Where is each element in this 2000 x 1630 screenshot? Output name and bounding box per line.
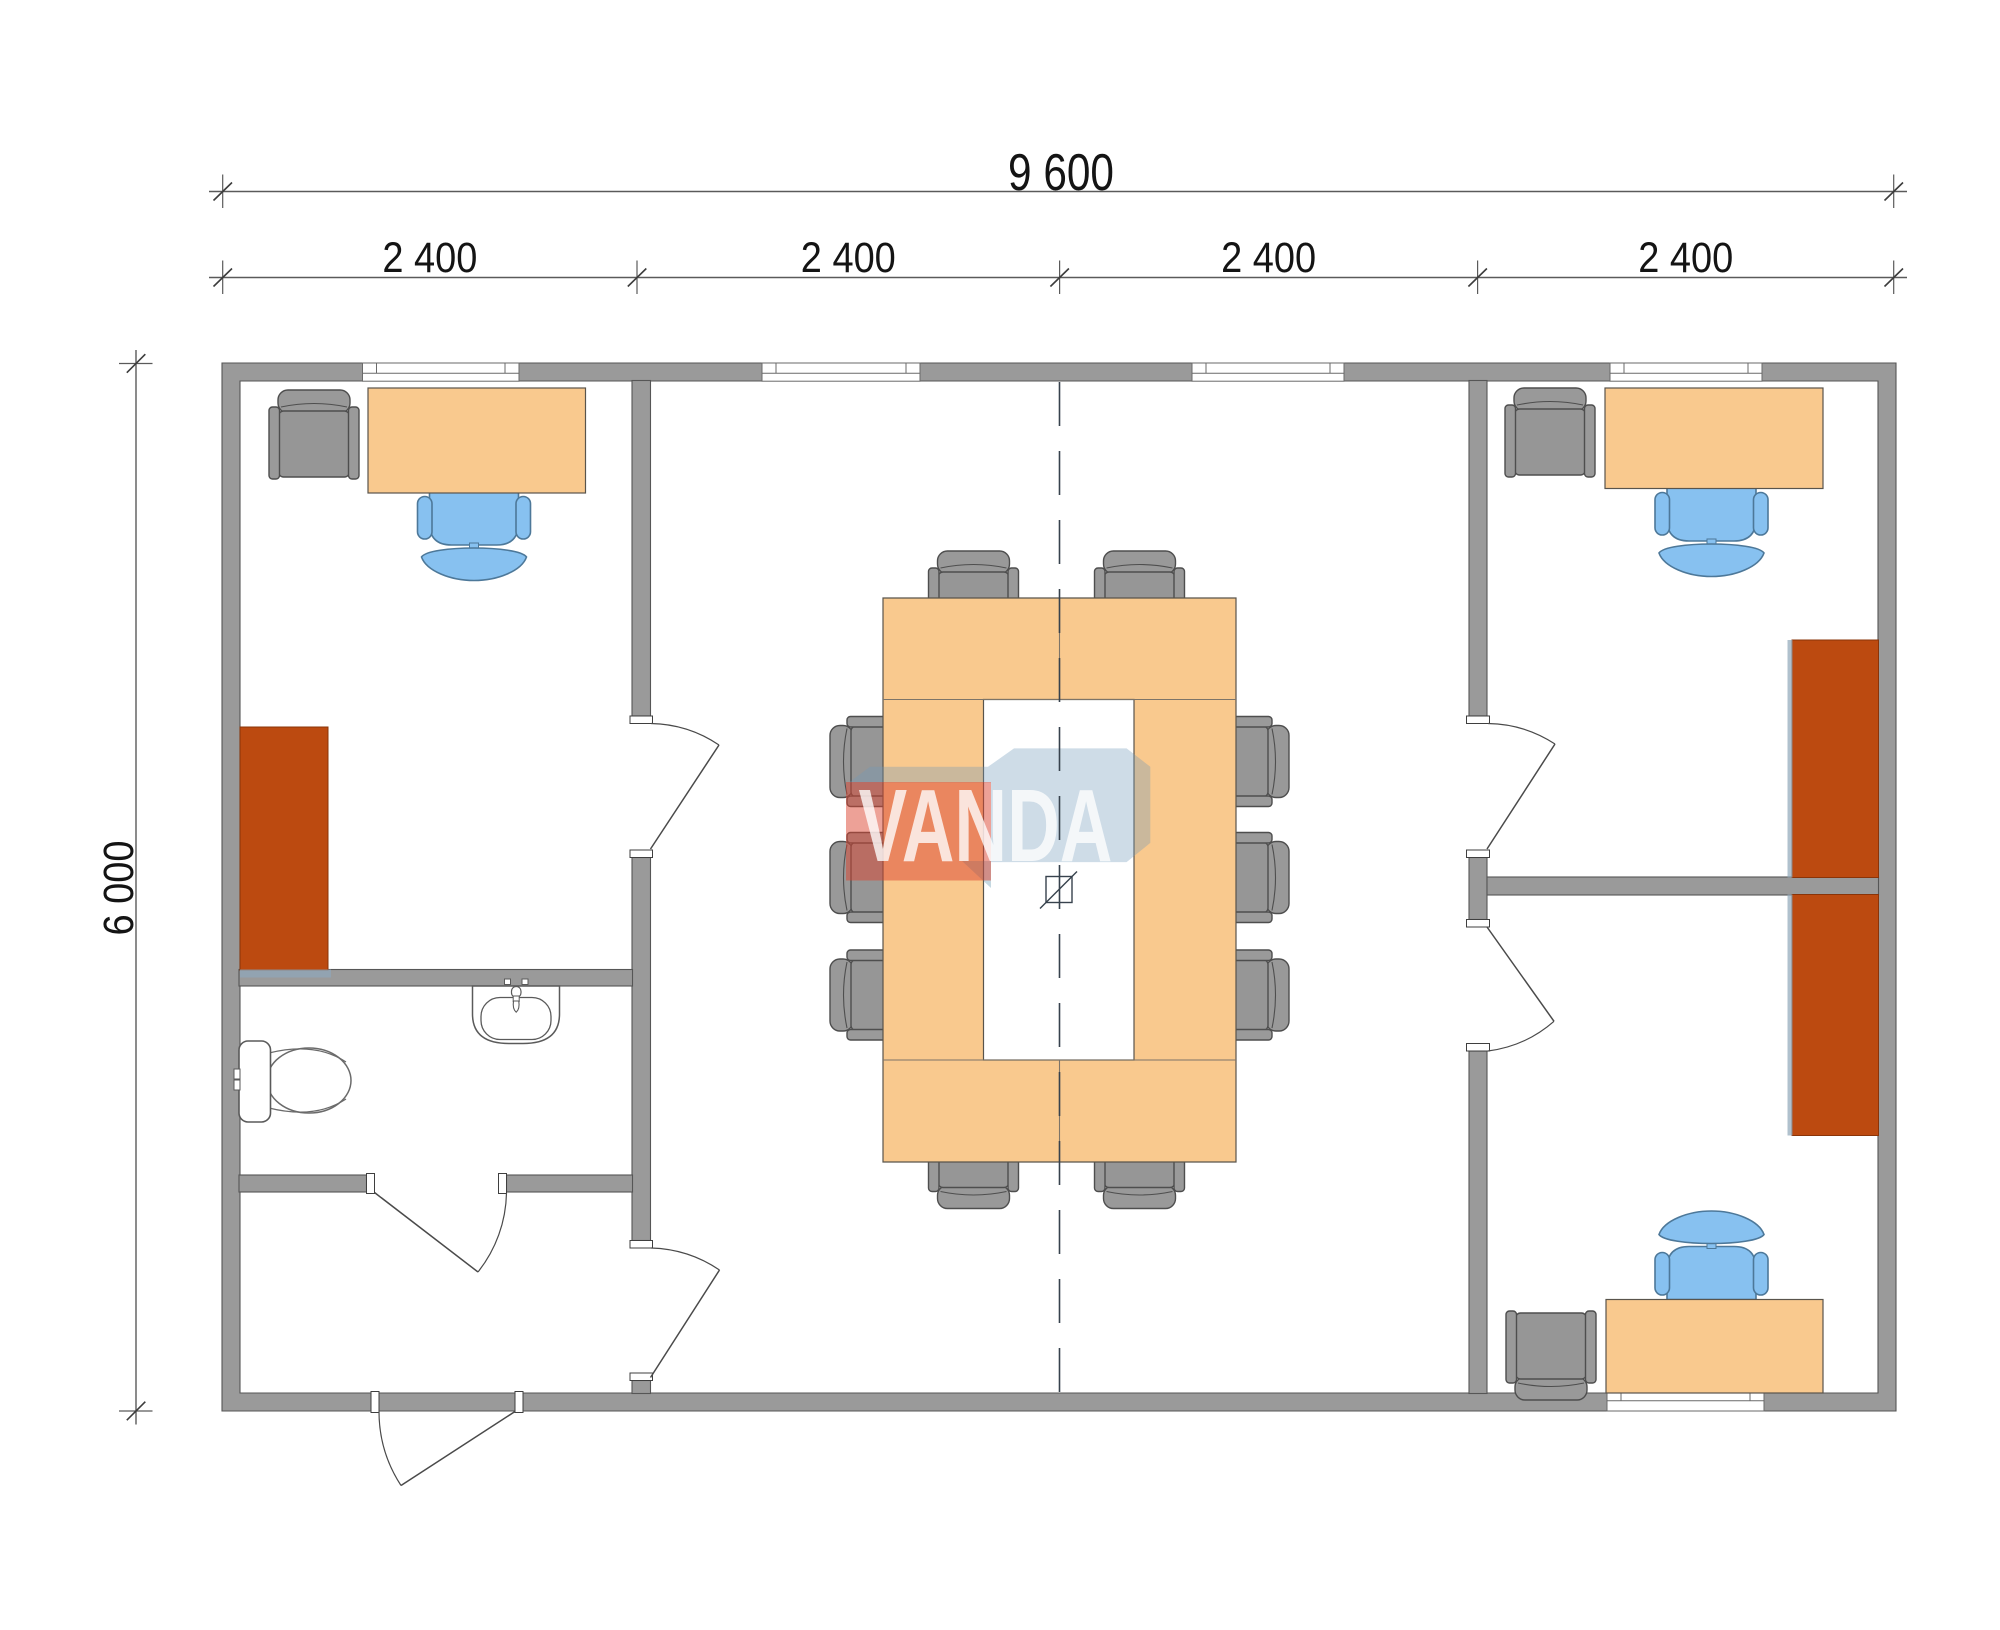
svg-text:VANDA: VANDA bbox=[859, 768, 1113, 883]
svg-text:2 400: 2 400 bbox=[382, 234, 477, 282]
svg-text:2 400: 2 400 bbox=[801, 234, 896, 282]
svg-text:9 600: 9 600 bbox=[1008, 144, 1114, 202]
svg-text:6 000: 6 000 bbox=[95, 841, 143, 936]
svg-text:2 400: 2 400 bbox=[1638, 234, 1733, 282]
svg-text:2 400: 2 400 bbox=[1221, 234, 1316, 282]
